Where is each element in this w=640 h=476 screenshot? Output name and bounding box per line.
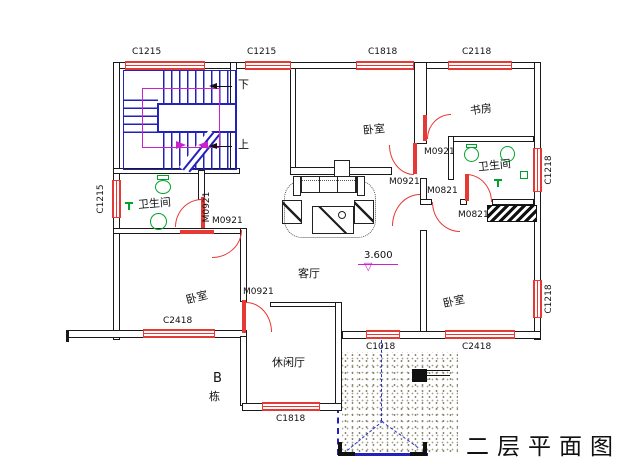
door-arc-leisure	[246, 302, 272, 332]
door-label-m0921-hall: M0921	[389, 177, 420, 187]
door-label-m0921-vestibule: M0921	[212, 216, 243, 226]
armchair-left	[282, 200, 302, 224]
wall-leisure-north	[270, 302, 342, 307]
wall-bedroom-right-west-lower	[420, 230, 427, 332]
window-c1818-top	[356, 61, 414, 70]
stair-guide-arrow-left	[198, 141, 208, 149]
porch-corner-post-left-base	[338, 452, 355, 456]
wall-bottom-left-tick	[66, 330, 69, 342]
armchair-right	[354, 200, 374, 224]
room-label-study: 书房	[469, 103, 492, 118]
drawing-title: 二层平面图	[466, 427, 621, 461]
door-label-m0821-bedroom: M0821	[427, 186, 458, 196]
floor-drain-right-bath	[520, 171, 528, 179]
window-c1018-bottom	[366, 330, 400, 339]
window-c1215-left	[112, 180, 121, 218]
door-label-m0821-bath: M0821	[458, 210, 489, 220]
porch-corner-post-right-base	[410, 452, 427, 456]
floor-plan: 下 上 C1215 C1215 C1818 C2118 C1215 C1218 …	[0, 0, 640, 476]
coffee-table-detail	[338, 211, 346, 219]
door-arc-bedroom-top	[389, 145, 414, 175]
faucet-icon-right-bath-h	[494, 179, 502, 181]
porch-rail-line	[427, 370, 450, 376]
wall-bedroom-top-west	[290, 68, 296, 175]
window-c2418-bottom-left	[143, 329, 215, 338]
room-label-bath-left: 卫生间	[138, 197, 172, 212]
wall-leisure-east	[335, 302, 342, 407]
window-label-c1218-right-upper: C1218	[544, 150, 554, 190]
window-label-c1215-top-left: C1215	[132, 47, 161, 57]
room-label-bedroom-left: 卧室	[185, 290, 209, 307]
stair-up-label: 上	[238, 140, 249, 150]
door-label-m0921-bath-left: M0921	[202, 187, 212, 227]
sofa-armrest-right	[357, 176, 365, 196]
block-label-char: 栋	[209, 392, 220, 402]
window-c1215-top-mid	[245, 61, 291, 70]
porch-post-upper	[412, 369, 427, 382]
coffee-table	[312, 206, 354, 234]
window-c2418-bottom-right	[445, 330, 515, 339]
faucet-icon-left-bath-h	[125, 202, 133, 204]
stair-guide-arrow-right	[176, 141, 186, 149]
sofa-armrest-left	[293, 176, 301, 196]
door-label-m0921-bedroom-left: M0921	[243, 287, 274, 297]
room-label-bedroom-right: 卧室	[442, 294, 466, 310]
door-arc-bedroom-left	[212, 230, 242, 258]
block-label-letter: B	[213, 374, 222, 384]
wall-bedroom-right-west-upper	[420, 178, 427, 200]
wall-bath-right-bottom-a	[420, 199, 432, 205]
window-label-c2118-top: C2118	[462, 47, 491, 57]
door-arc-bath-left	[175, 199, 202, 227]
wall-study-bottom	[448, 136, 534, 142]
vanity-counter	[487, 205, 537, 222]
door-label-m0921-top: M0921	[424, 147, 455, 157]
window-c1218-right-upper	[533, 148, 542, 192]
stair-down-label: 下	[238, 80, 249, 90]
door-leaf-bedroom-left	[180, 230, 214, 234]
sofa-back	[301, 176, 357, 193]
window-label-c1215-top-mid: C1215	[247, 47, 276, 57]
window-c1215-top-left	[125, 61, 205, 70]
window-label-c1218-right-lower: C1218	[544, 279, 554, 319]
window-c1818-leisure	[262, 402, 320, 411]
room-label-leisure: 休闲厅	[272, 357, 305, 369]
stair-up-arrow-line	[216, 146, 232, 147]
window-label-c2418-bottom-left: C2418	[163, 316, 192, 326]
room-label-living: 客厅	[298, 268, 320, 280]
window-label-c1018: C1018	[366, 342, 395, 352]
window-label-c1215-left: C1215	[96, 179, 106, 219]
window-label-c1818-leisure: C1818	[276, 414, 305, 424]
elevation-triangle: ▽	[364, 261, 372, 272]
shower-drain-icon-left-bath	[150, 213, 167, 230]
door-arc-study	[427, 114, 451, 139]
stair-guide-rect	[142, 88, 220, 148]
stair-down-arrowhead	[209, 83, 217, 89]
door-arc-hall-living	[392, 194, 420, 226]
door-arc-bath-right	[466, 174, 492, 202]
tv-cabinet	[334, 160, 350, 177]
toilet-icon-left-bath	[155, 180, 171, 194]
roof-ridge-dashed-vertical	[381, 340, 382, 421]
stair-down-arrow-line	[216, 86, 232, 87]
room-label-bedroom-top: 卧室	[362, 123, 385, 137]
window-c1218-right-lower	[533, 280, 542, 318]
window-label-c1818-top: C1818	[368, 47, 397, 57]
wall-leisure-west	[240, 336, 247, 406]
room-label-bath-right: 卫生间	[477, 158, 511, 173]
wall-bath-right-west	[448, 136, 454, 180]
window-c2118-top	[448, 61, 512, 70]
door-arc-bedroom-right	[432, 202, 460, 232]
window-label-c2418-bottom-right: C2418	[462, 342, 491, 352]
stair-up-arrowhead	[209, 143, 217, 149]
